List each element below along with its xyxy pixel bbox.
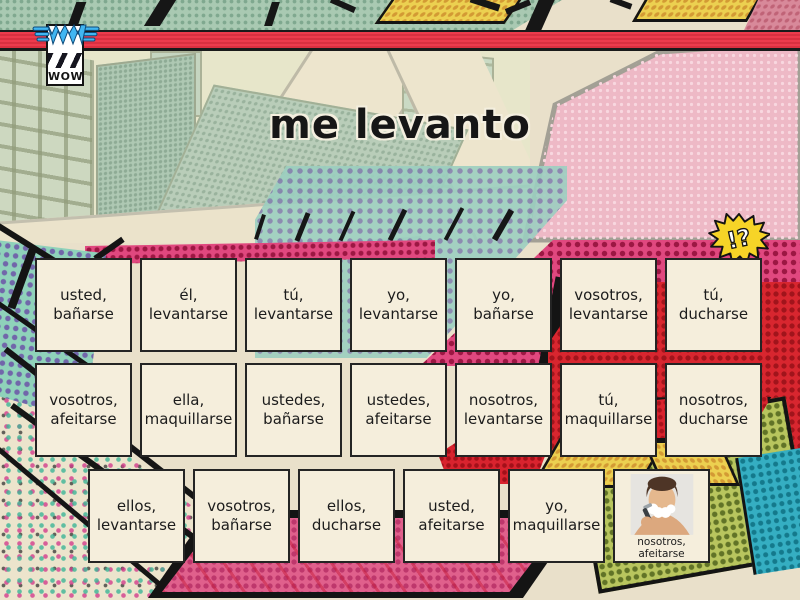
tile-label: él, levantarse: [149, 286, 228, 325]
logo-stripes: [48, 53, 82, 68]
tile-label: ustedes, afeitarse: [365, 391, 431, 430]
answer-tile[interactable]: usted, bañarse: [35, 258, 132, 352]
answer-tile[interactable]: yo, maquillarse: [508, 469, 605, 563]
answer-tile[interactable]: ellos, ducharse: [298, 469, 395, 563]
tile-label: vosotros, afeitarse: [49, 391, 118, 430]
prompt-title: me levanto: [0, 102, 800, 148]
answer-tile[interactable]: ustedes, afeitarse: [350, 363, 447, 457]
wow-wings-icon: [32, 22, 100, 48]
tile-label: yo, levantarse: [359, 286, 438, 325]
tile-label: ustedes, bañarse: [262, 391, 326, 430]
answer-tile[interactable]: yo, bañarse: [455, 258, 552, 352]
board-row: vosotros, afeitarse ella, maquillarse us…: [35, 363, 762, 457]
comic-mark: [610, 0, 633, 10]
tile-label: nosotros, afeitarse: [637, 536, 685, 561]
game-screen: WOW me levanto !? usted, bañarse él, lev…: [0, 0, 800, 600]
answer-tile[interactable]: usted, afeitarse: [403, 469, 500, 563]
yellow-halftone-shape: [632, 0, 763, 22]
answer-tile[interactable]: ustedes, bañarse: [245, 363, 342, 457]
man-shaving-photo: [629, 474, 695, 535]
tile-label: ellos, levantarse: [97, 497, 176, 536]
tile-label: usted, bañarse: [53, 286, 114, 325]
yellow-halftone-shape: [374, 0, 525, 24]
answer-tile[interactable]: tú, ducharse: [665, 258, 762, 352]
answer-tile[interactable]: nosotros, levantarse: [455, 363, 552, 457]
tile-label: vosotros, bañarse: [207, 497, 276, 536]
tile-label: tú, ducharse: [679, 286, 748, 325]
answer-tile[interactable]: yo, levantarse: [350, 258, 447, 352]
answer-tile[interactable]: tú, maquillarse: [560, 363, 657, 457]
red-banner: [0, 30, 800, 51]
answer-tile[interactable]: vosotros, afeitarse: [35, 363, 132, 457]
answer-tile[interactable]: vosotros, bañarse: [193, 469, 290, 563]
tile-label: usted, afeitarse: [418, 497, 484, 536]
tile-label: nosotros, levantarse: [464, 391, 543, 430]
tile-label: ella, maquillarse: [145, 391, 233, 430]
answer-tile-with-image[interactable]: nosotros, afeitarse: [613, 469, 710, 563]
answer-tile[interactable]: nosotros, ducharse: [665, 363, 762, 457]
answer-tile[interactable]: ellos, levantarse: [88, 469, 185, 563]
answer-tile[interactable]: tú, levantarse: [245, 258, 342, 352]
answer-tile[interactable]: él, levantarse: [140, 258, 237, 352]
board-row: ellos, levantarse vosotros, bañarse ello…: [88, 469, 710, 563]
tile-label: yo, maquillarse: [513, 497, 601, 536]
tile-label: nosotros, ducharse: [679, 391, 748, 430]
tile-label: ellos, ducharse: [312, 497, 381, 536]
tile-label: vosotros, levantarse: [569, 286, 648, 325]
logo-text: WOW: [48, 70, 82, 83]
tile-label: yo, bañarse: [473, 286, 534, 325]
tile-label: tú, levantarse: [254, 286, 333, 325]
board-row: usted, bañarse él, levantarse tú, levant…: [35, 258, 762, 352]
answer-tile[interactable]: ella, maquillarse: [140, 363, 237, 457]
tile-label: tú, maquillarse: [565, 391, 653, 430]
answer-tile[interactable]: vosotros, levantarse: [560, 258, 657, 352]
